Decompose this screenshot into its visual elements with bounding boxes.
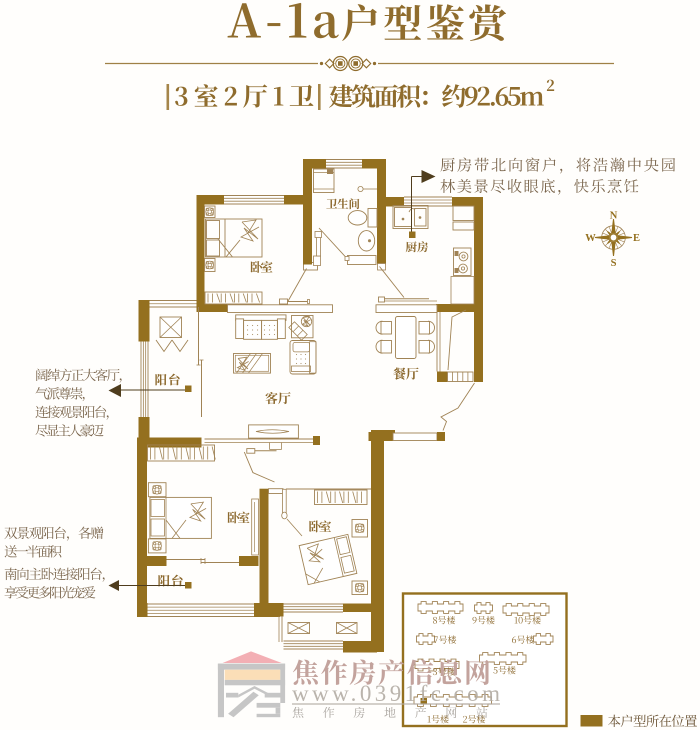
svg-text:N: N — [610, 211, 618, 222]
svg-text:W: W — [585, 233, 596, 244]
svg-text:E: E — [633, 233, 640, 244]
svg-text:www.0391fc.com: www.0391fc.com — [292, 681, 500, 706]
svg-text:S: S — [611, 258, 617, 269]
